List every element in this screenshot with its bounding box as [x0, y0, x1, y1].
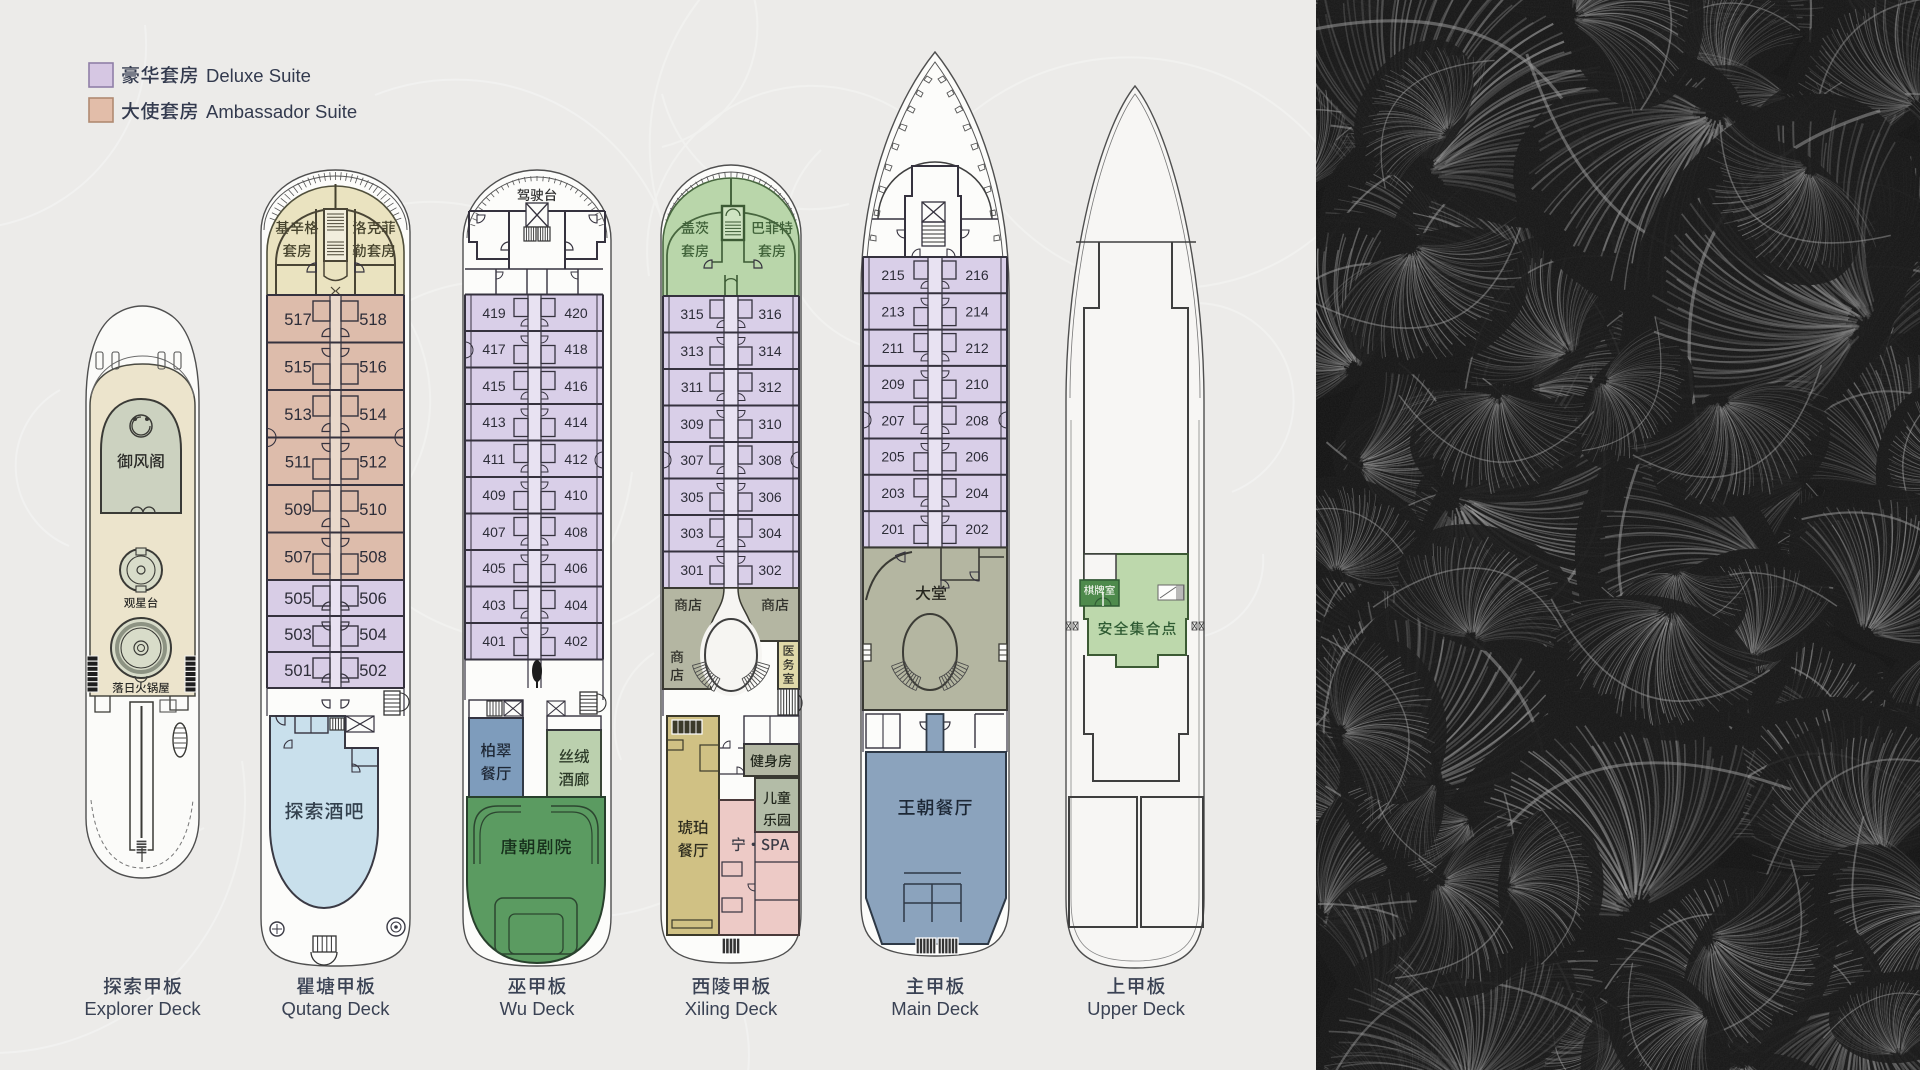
svg-text:Deluxe Suite: Deluxe Suite [206, 65, 311, 86]
svg-text:Qutang Deck: Qutang Deck [282, 998, 391, 1019]
svg-text:408: 408 [564, 524, 588, 540]
svg-text:403: 403 [482, 597, 506, 613]
svg-text:506: 506 [359, 590, 387, 608]
svg-text:309: 309 [680, 416, 704, 432]
svg-text:210: 210 [965, 376, 989, 392]
svg-text:416: 416 [564, 378, 588, 394]
svg-text:213: 213 [881, 304, 905, 320]
svg-text:307: 307 [680, 452, 704, 468]
svg-text:214: 214 [965, 304, 989, 320]
svg-text:Upper Deck: Upper Deck [1087, 998, 1185, 1019]
svg-text:407: 407 [482, 524, 506, 540]
svg-text:513: 513 [284, 406, 312, 424]
svg-text:410: 410 [564, 487, 588, 503]
svg-text:503: 503 [284, 626, 312, 644]
svg-text:216: 216 [965, 267, 989, 283]
svg-text:402: 402 [564, 633, 588, 649]
svg-text:209: 209 [881, 376, 905, 392]
svg-text:514: 514 [359, 406, 387, 424]
svg-text:215: 215 [881, 267, 905, 283]
svg-text:411: 411 [483, 451, 506, 467]
svg-text:301: 301 [680, 562, 704, 578]
svg-text:417: 417 [482, 341, 506, 357]
svg-text:202: 202 [965, 521, 989, 537]
svg-text:518: 518 [359, 311, 387, 329]
svg-text:501: 501 [284, 662, 312, 680]
svg-text:404: 404 [564, 597, 588, 613]
svg-text:313: 313 [680, 343, 704, 359]
svg-text:211: 211 [882, 340, 905, 356]
svg-text:420: 420 [564, 305, 588, 321]
svg-text:401: 401 [482, 633, 506, 649]
svg-text:316: 316 [758, 306, 782, 322]
svg-text:314: 314 [758, 343, 782, 359]
svg-text:413: 413 [482, 414, 506, 430]
svg-text:418: 418 [564, 341, 588, 357]
svg-text:508: 508 [359, 548, 387, 566]
svg-text:Main Deck: Main Deck [891, 998, 979, 1019]
svg-text:406: 406 [564, 560, 588, 576]
svg-text:203: 203 [881, 485, 905, 501]
svg-text:303: 303 [680, 525, 704, 541]
svg-text:204: 204 [965, 485, 989, 501]
svg-text:206: 206 [965, 449, 989, 465]
svg-text:310: 310 [758, 416, 782, 432]
svg-text:504: 504 [359, 626, 387, 644]
svg-text:201: 201 [881, 521, 905, 537]
svg-text:306: 306 [758, 489, 782, 505]
svg-text:515: 515 [284, 358, 312, 376]
svg-text:208: 208 [965, 412, 989, 428]
svg-text:507: 507 [284, 548, 312, 566]
svg-text:Explorer Deck: Explorer Deck [84, 998, 201, 1019]
svg-text:312: 312 [758, 379, 782, 395]
svg-text:510: 510 [359, 501, 387, 519]
svg-text:414: 414 [564, 414, 588, 430]
svg-text:311: 311 [681, 379, 704, 395]
svg-text:409: 409 [482, 487, 506, 503]
svg-text:505: 505 [284, 590, 312, 608]
svg-text:511: 511 [285, 453, 311, 471]
svg-text:207: 207 [881, 412, 905, 428]
svg-text:517: 517 [284, 311, 312, 329]
svg-text:516: 516 [359, 358, 387, 376]
svg-text:Wu Deck: Wu Deck [500, 998, 575, 1019]
svg-text:412: 412 [564, 451, 588, 467]
svg-text:512: 512 [359, 453, 387, 471]
svg-text:305: 305 [680, 489, 704, 505]
svg-text:502: 502 [359, 662, 387, 680]
svg-text:405: 405 [482, 560, 506, 576]
svg-text:205: 205 [881, 449, 905, 465]
svg-text:308: 308 [758, 452, 782, 468]
svg-text:Ambassador Suite: Ambassador Suite [206, 101, 357, 122]
svg-text:509: 509 [284, 501, 312, 519]
svg-text:304: 304 [758, 525, 782, 541]
svg-text:415: 415 [482, 378, 506, 394]
svg-text:Xiling Deck: Xiling Deck [685, 998, 778, 1019]
svg-text:212: 212 [965, 340, 989, 356]
svg-text:302: 302 [758, 562, 782, 578]
svg-text:315: 315 [680, 306, 704, 322]
svg-text:419: 419 [482, 305, 506, 321]
